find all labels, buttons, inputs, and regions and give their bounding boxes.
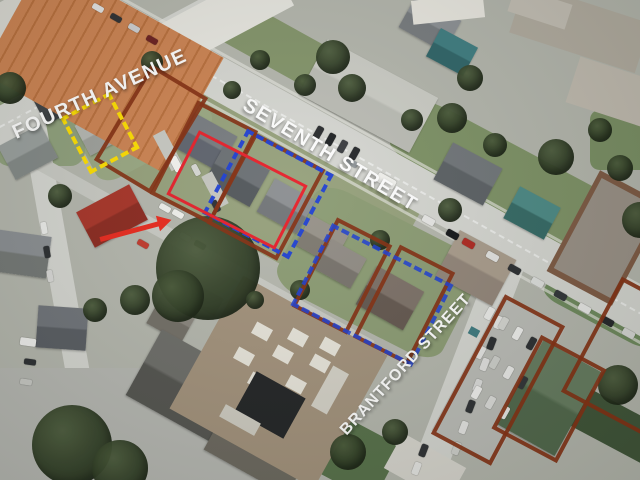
tree xyxy=(483,133,507,157)
tree xyxy=(246,291,264,309)
car xyxy=(136,238,149,249)
tree xyxy=(316,40,350,74)
tree xyxy=(370,230,390,250)
tree xyxy=(588,118,612,142)
tree xyxy=(294,74,316,96)
tree xyxy=(290,280,310,300)
building xyxy=(411,0,485,25)
car xyxy=(24,358,37,366)
tree xyxy=(538,139,574,175)
tree xyxy=(338,74,366,102)
tree xyxy=(152,270,204,322)
tree xyxy=(457,65,483,91)
aerial-photo: FOURTH AVENUE SEVENTH STREET BRANTFORD S… xyxy=(0,0,640,480)
tree xyxy=(83,298,107,322)
tree xyxy=(401,109,423,131)
tree xyxy=(598,365,638,405)
tree xyxy=(382,419,408,445)
tree xyxy=(250,50,270,70)
tree xyxy=(607,155,633,181)
car xyxy=(20,337,37,347)
tree xyxy=(48,184,72,208)
house xyxy=(36,305,89,350)
tree xyxy=(438,198,462,222)
tree xyxy=(437,103,467,133)
tree xyxy=(120,285,150,315)
